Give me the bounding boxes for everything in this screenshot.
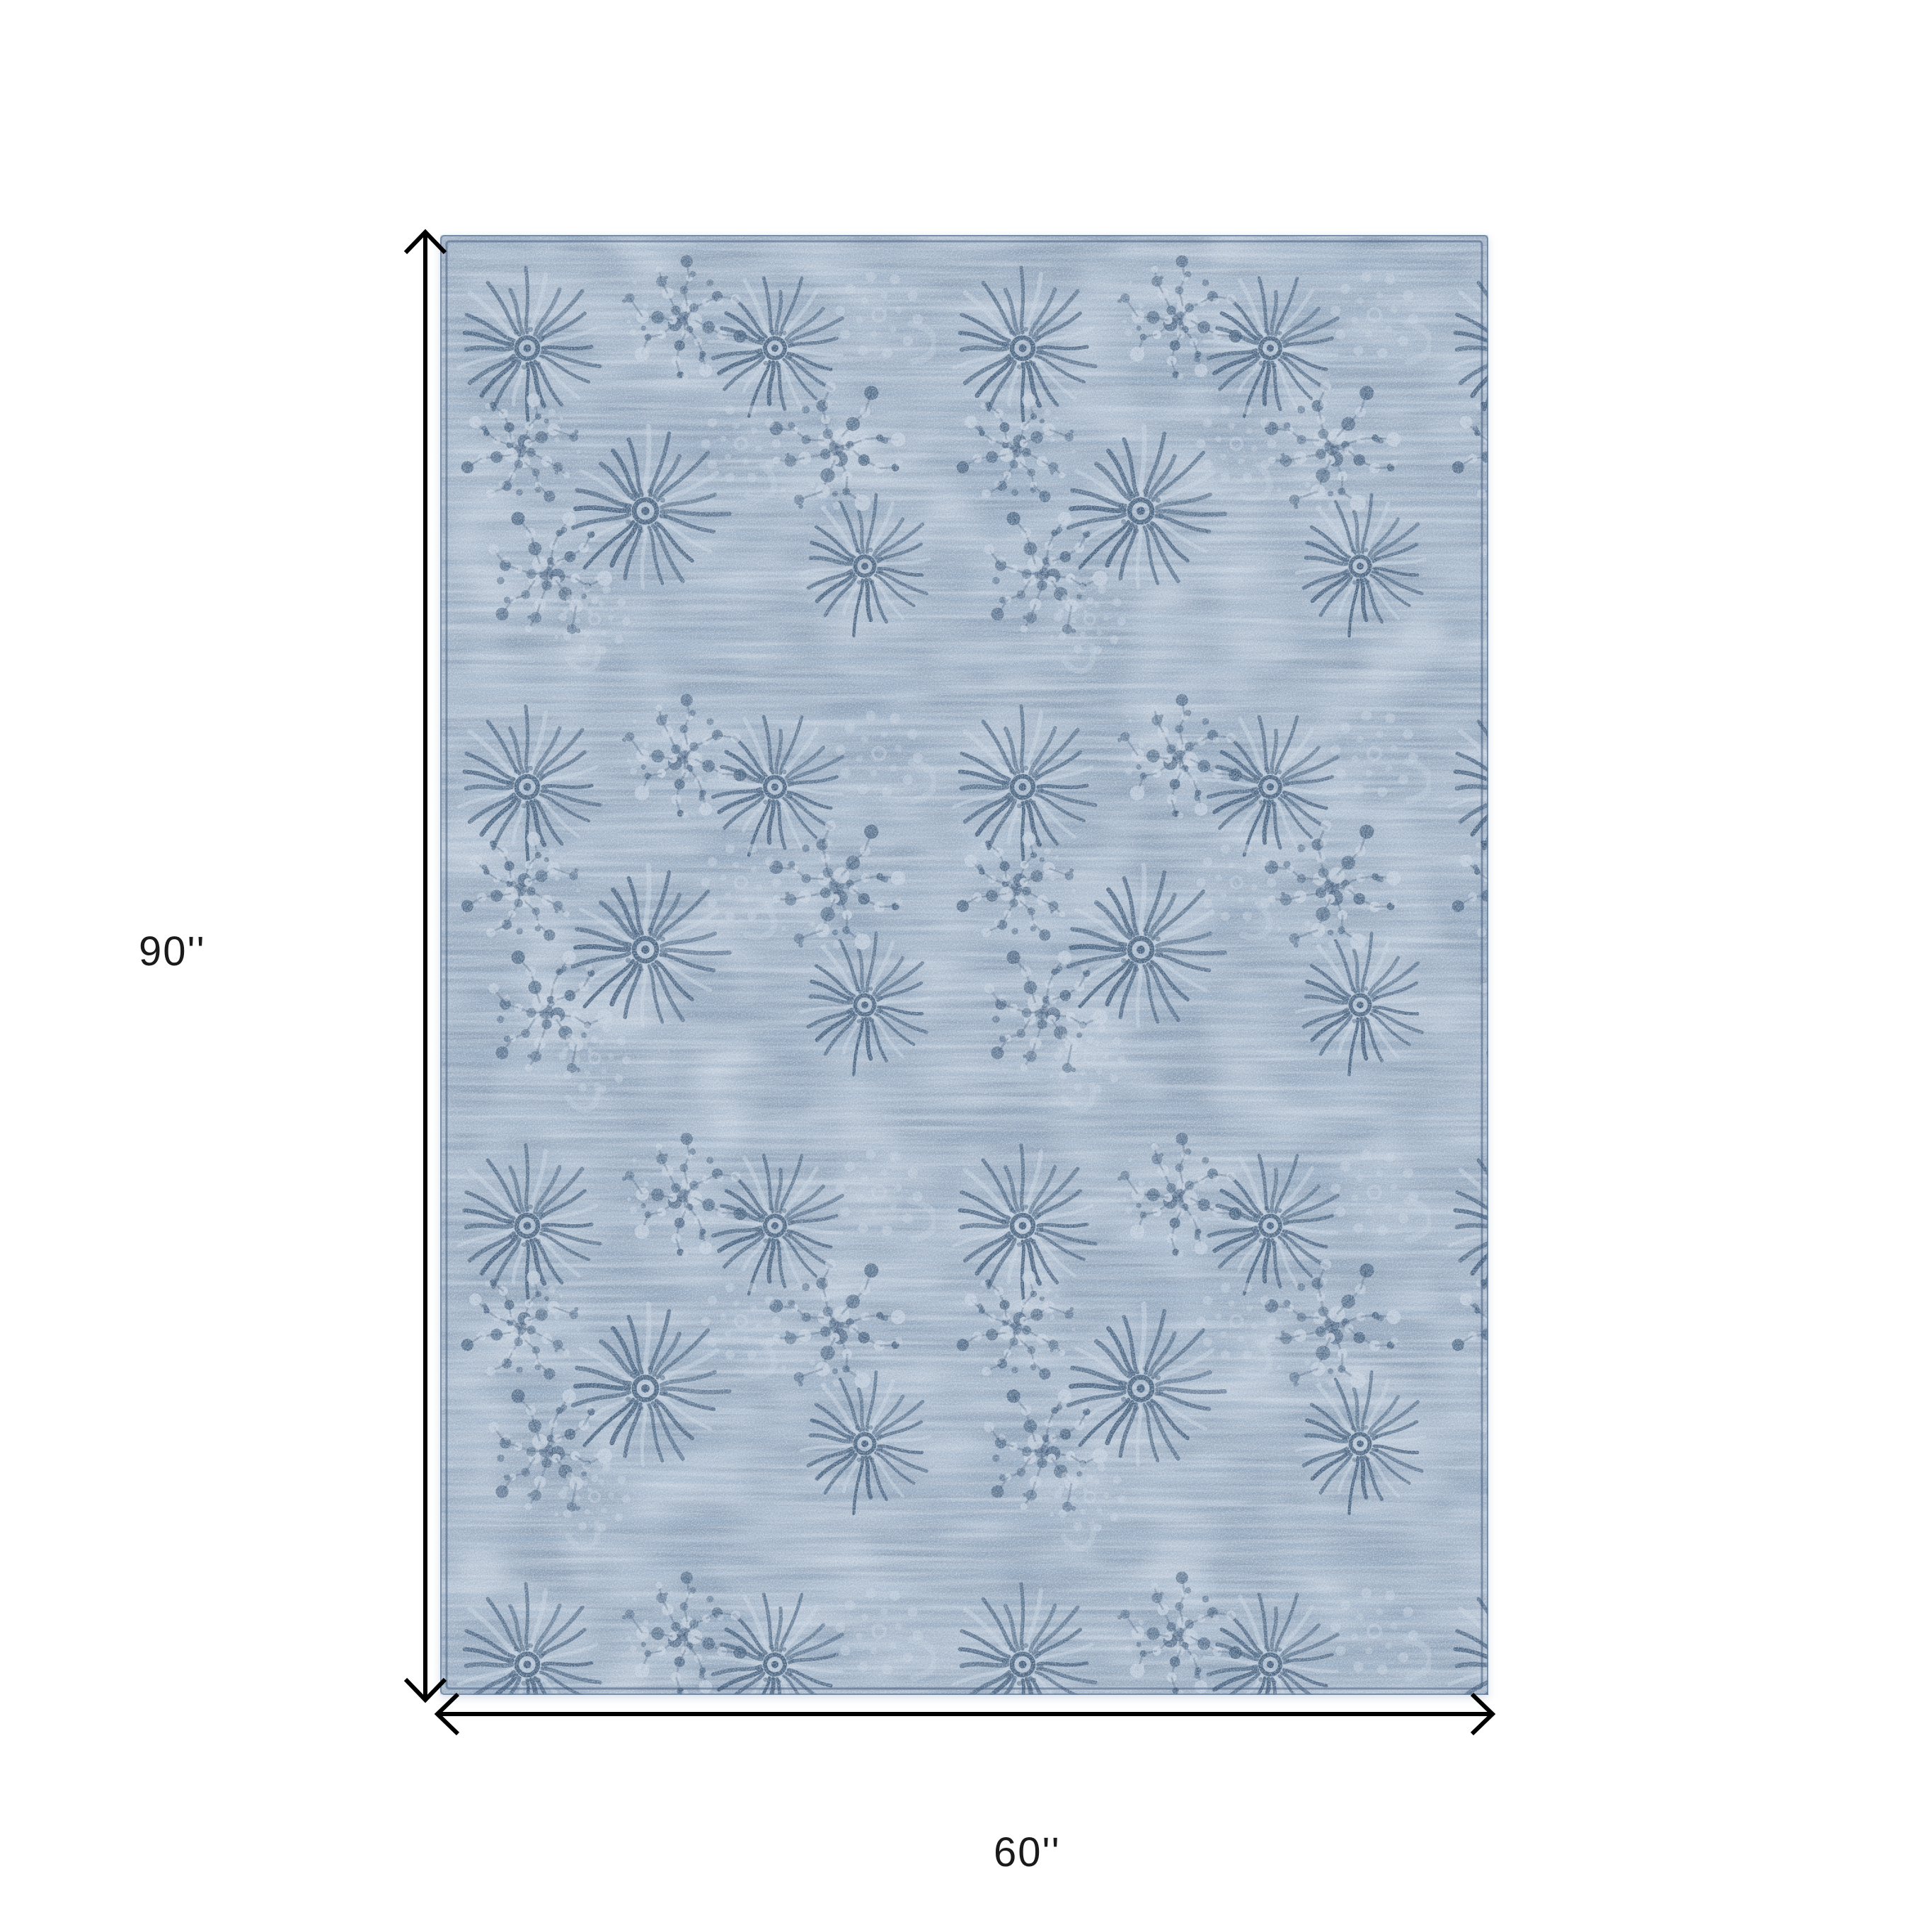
width-arrow — [437, 1694, 1493, 1734]
arrowhead-down-icon — [406, 1679, 445, 1700]
arrowhead-up-icon — [406, 232, 445, 253]
rug-texture — [440, 235, 1488, 1695]
width-dimension-label: 60'' — [994, 1832, 1061, 1873]
height-arrow — [406, 232, 445, 1700]
height-dimension-label: 90'' — [139, 931, 206, 972]
arrowhead-right-icon — [1472, 1694, 1493, 1734]
arrowhead-left-icon — [437, 1694, 458, 1734]
rug-image — [440, 235, 1488, 1695]
size-diagram: 90'' 60'' — [0, 0, 1932, 1932]
